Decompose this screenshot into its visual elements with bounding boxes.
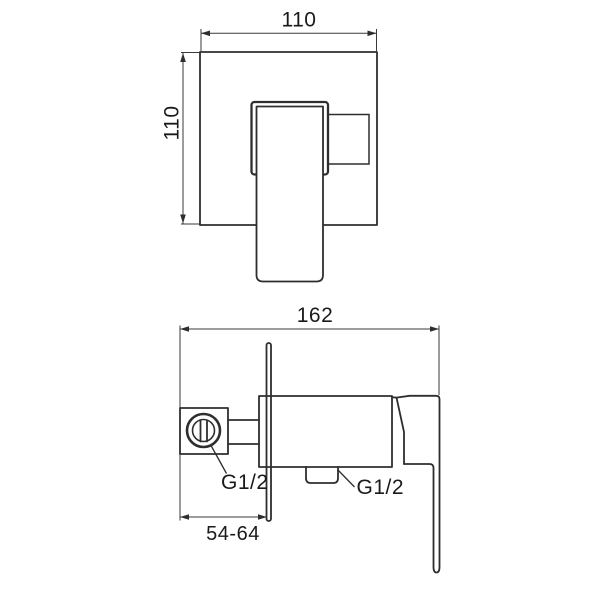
outlet-port: [306, 467, 338, 483]
inlet-inner-ring: [193, 420, 215, 442]
arrowhead: [180, 514, 189, 520]
dim-height: 110: [161, 53, 201, 225]
drawing-svg: 110 110 162: [0, 0, 600, 600]
valve-body-side: [259, 396, 392, 467]
arrowhead: [368, 31, 377, 37]
dim-depth: 54-64: [180, 514, 267, 545]
outlet-thread-label: G1/2: [357, 476, 405, 499]
arrowhead: [180, 326, 189, 332]
arrowhead: [180, 53, 186, 62]
handle-tab-front: [328, 115, 369, 165]
dim-depth-label: 54-64: [206, 523, 260, 545]
front-view: 110 110: [161, 9, 378, 282]
technical-drawing-canvas: 110 110 162: [0, 0, 600, 600]
arrowhead: [201, 31, 210, 37]
dim-height-label: 110: [161, 106, 184, 141]
supply-pipe: [228, 420, 259, 444]
handle-neck: [392, 397, 404, 464]
handle-lever-front: [257, 107, 324, 282]
side-view: 162 G1/2 G1/2: [180, 304, 440, 573]
outlet-leader-line: [338, 470, 355, 488]
dim-width-label: 110: [282, 9, 317, 32]
wall-plate-edge: [267, 343, 272, 521]
outlet-thread-callout: G1/2: [338, 470, 405, 500]
arrowhead: [430, 326, 439, 332]
inlet-thread-label: G1/2: [221, 471, 269, 494]
dim-length-label: 162: [297, 304, 334, 327]
dim-width: 110: [201, 9, 377, 52]
arrowhead: [180, 215, 186, 224]
